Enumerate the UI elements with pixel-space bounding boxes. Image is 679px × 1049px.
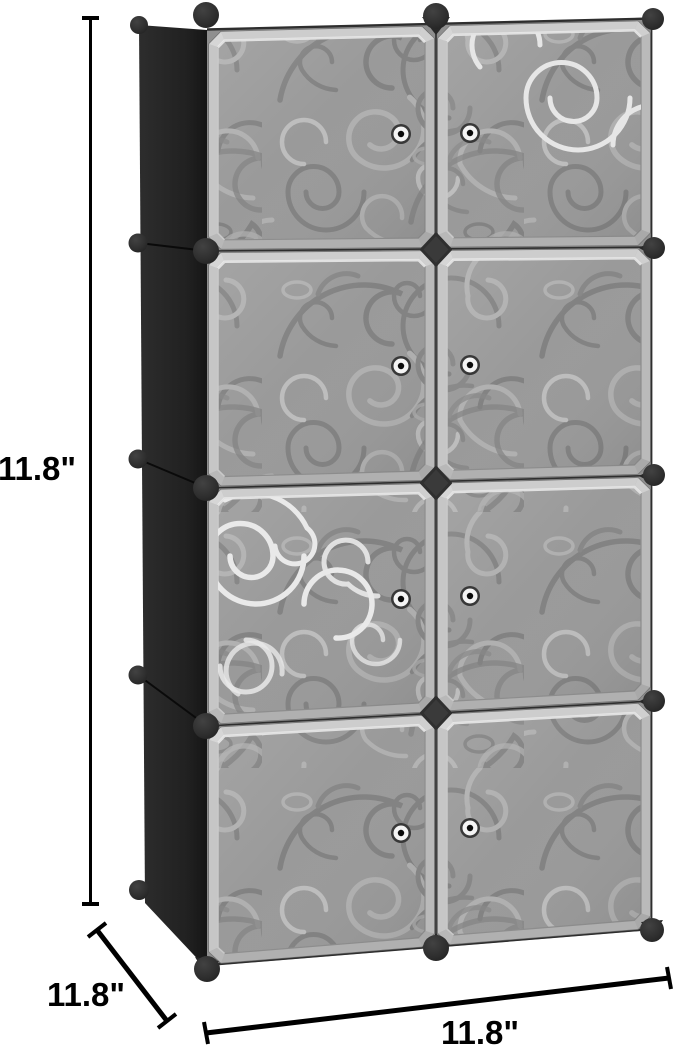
svg-text:11.8": 11.8" xyxy=(441,1014,519,1049)
svg-text:11.8": 11.8" xyxy=(47,976,125,1013)
svg-text:11.8": 11.8" xyxy=(0,450,76,487)
